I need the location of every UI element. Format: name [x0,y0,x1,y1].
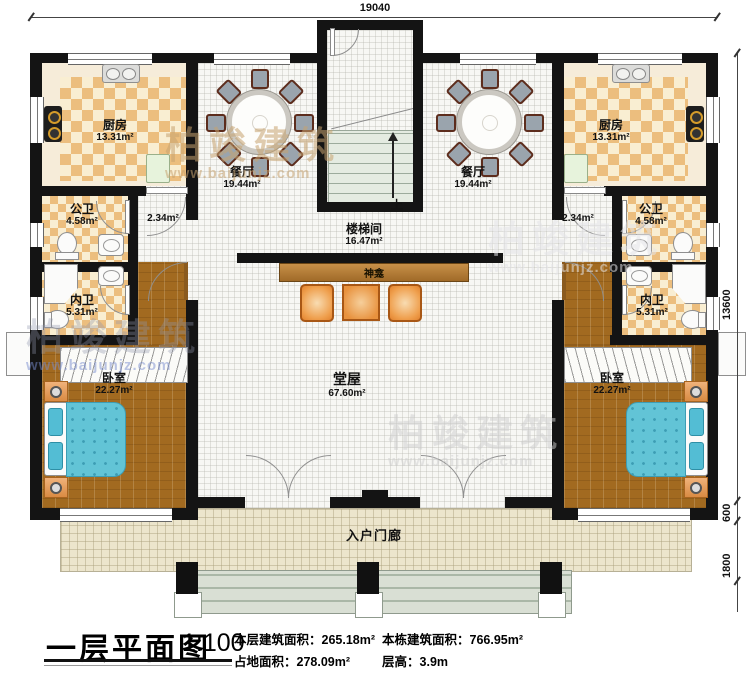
porch-column-left [176,562,198,594]
ensuite-right-wall-bottom [610,335,706,345]
bed-blanket-right [626,402,686,477]
bed-headboard-right [684,402,708,476]
room-label-corridor-left: 2.34m² [136,213,190,225]
sink-ensuite-right [626,266,652,286]
wall-right-wing-divider [552,63,564,220]
dining-table-right [457,90,521,154]
burner [690,111,703,124]
dining-table-center [482,115,498,131]
porch-column-center [357,562,379,594]
room-label-dining-right: 餐厅 19.44m² [438,165,508,191]
title-underline [44,659,232,662]
sink-basin [106,68,120,80]
kitchen-right-wall-bottom [604,186,706,196]
kitchen-left-wall-bottom [42,186,146,196]
window-left-ensuite [30,297,44,330]
hall-south-pier-right [505,497,552,508]
hall-armchair-left [300,284,334,322]
room-label-stair-hall: 楼梯间 16.47m² [324,222,404,248]
stat-land-area: 占地面积：278.09m² [234,651,350,670]
dimension-width-label: 19040 [0,2,750,14]
dining-set-left [201,64,317,180]
kitchen-sink-right [612,64,650,83]
lamp [690,386,702,398]
toilet-tank-public-right [671,252,695,260]
dining-chair [294,114,314,132]
room-label-main-hall: 堂屋 67.60m² [312,371,382,400]
nightstand-right-b [684,477,708,498]
burner [48,127,61,140]
sink-basin [631,239,648,252]
sink-basin [122,68,136,80]
floor-plan-canvas: 神龛 [0,0,750,679]
stove-left [44,106,62,142]
bay-window-right [718,332,746,376]
porch-column-right [540,562,562,594]
sink-basin [103,270,120,282]
window-right-public-bath [706,223,720,247]
column-base-left [174,592,202,618]
pillow [48,408,63,436]
room-label-kitchen-left: 厨房 13.31m² [80,118,150,144]
sink-basin [632,68,646,80]
title-underline-2 [44,665,232,666]
pillow [689,442,704,470]
burner [690,127,703,140]
pillow [689,408,704,436]
lamp [690,482,702,494]
dining-table-center [252,115,268,131]
dining-chair [481,69,499,89]
kitchen-left-door-leaf [146,187,188,194]
fridge-left [146,154,170,183]
dining-chair [436,114,456,132]
nightstand-right-a [684,381,708,402]
room-label-public-bath-right: 公卫 4.58m² [621,202,681,228]
stairwell-wall-right [413,20,423,212]
room-label-kitchen-right: 厨房 13.31m² [576,118,646,144]
room-label-ensuite-left: 内卫 5.31m² [52,293,112,319]
stair-up-label: 上 [386,198,408,212]
bedroom-right-wall-left [552,300,564,517]
pillow [48,442,63,470]
sink-ensuite-left [98,266,124,286]
room-label-ensuite-right: 内卫 5.31m² [622,293,682,319]
stat-total-area: 本栋建筑面积：766.95m² [382,629,523,648]
window-bottom-bedroom-left [60,508,172,522]
wall-left-wing-divider [186,63,198,220]
room-label-porch: 入户门廊 [304,528,444,544]
hall-square-table [342,284,380,321]
window-left-public-bath [30,223,44,247]
ensuite-left-wall-bottom [42,335,138,345]
dimension-steps-label: 1800 [721,534,733,578]
hall-south-pier-center [330,497,420,508]
room-label-corridor-right: 2.34m² [548,213,608,225]
dimension-line-top [30,17,718,18]
stat-floor-height: 层高：3.9m [382,651,448,670]
lamp [50,386,62,398]
kitchen-sink-left [102,64,140,83]
sink-public-right [626,234,652,256]
dining-chair [278,141,305,168]
nightstand-left-a [44,381,68,402]
sink-basin [631,270,648,282]
toilet-tank-ensuite-left [44,312,52,328]
lamp [50,482,62,494]
dining-table-left [227,90,291,154]
dimension-porch-label: 600 [721,494,733,522]
toilet-tank-public-left [55,252,79,260]
dining-chair [206,114,226,132]
dining-set-right [431,64,547,180]
dining-chair [251,69,269,89]
room-label-public-bath-left: 公卫 4.58m² [52,202,112,228]
dining-chair [524,114,544,132]
stair-treads [328,130,414,204]
column-base-center [355,592,383,618]
nightstand-left-b [44,477,68,498]
shrine-table: 神龛 [279,263,469,282]
sink-public-left [98,234,124,256]
bed-headboard-left [44,402,68,476]
ensuite-right-wall-left [612,272,622,335]
bedroom-left-wall-right [186,300,198,517]
stair-up-arrow-head [388,132,398,141]
hall-south-pier-left [198,497,245,508]
sink-basin [616,68,630,80]
window-bottom-bedroom-right [578,508,690,522]
window-left-kitchen [30,97,44,143]
room-label-bedroom-right: 卧室 22.27m² [578,371,646,397]
stair-up-arrow-line [392,140,394,198]
window-right-ensuite [706,297,720,330]
hall-south-pier-center-bump [362,490,388,497]
burner [48,111,61,124]
hall-armchair-right [388,284,422,322]
stove-right [686,106,704,142]
dining-chair [508,141,535,168]
stairwell-wall-left [317,20,327,212]
window-right-kitchen [706,97,720,143]
room-label-bedroom-left: 卧室 22.27m² [80,371,148,397]
fridge-right [564,154,588,183]
shrine-label: 神龛 [364,269,384,280]
sink-basin [103,239,120,252]
shrine-wall [237,253,503,263]
bed-blanket-left [66,402,126,477]
column-base-right [538,592,566,618]
dimension-height-label: 13600 [721,240,733,320]
room-label-dining-left: 餐厅 19.44m² [207,165,277,191]
dimension-line-right [737,53,738,612]
stat-floor-area: 本层建筑面积：265.18m² [234,629,375,648]
kitchen-right-door-leaf [564,187,606,194]
toilet-tank-ensuite-right [698,312,706,328]
